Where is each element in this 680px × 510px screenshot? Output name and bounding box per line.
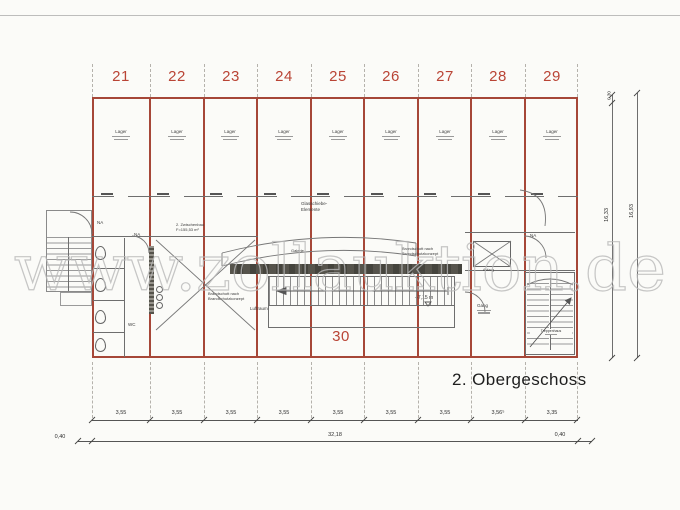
unit-divider [310,98,312,357]
unit-number: 22 [157,68,197,85]
door-opening [277,194,291,198]
unit-number: 28 [478,68,518,85]
grid-extension-line [257,362,258,418]
grid-extension-line [525,64,526,97]
wc-stall-wall [93,300,124,301]
dim-segment-label: 3,35 [532,410,572,416]
na-label: NA [97,220,103,226]
toilet-fixture [95,246,106,260]
right-zone-wall [465,232,575,233]
unit-number: 21 [101,68,141,85]
wc-partition-wall [124,238,125,357]
unit-label: Lager [369,130,413,140]
grid-extension-line [418,362,419,418]
door-opening [491,194,505,198]
dim-margin-label: 0,40 [46,434,74,440]
door-leaf [371,193,383,195]
unit-number: 25 [318,68,358,85]
unit-label: Lager [476,130,520,140]
door-leaf [531,193,543,195]
door-opening [384,194,398,198]
scanned-floor-plan-page: 21 22 23 24 25 26 27 28 29 Lager Lager L… [0,0,680,510]
galerie-label: Galerie [291,248,304,253]
exterior-landing [60,292,92,306]
dim-segment-label: 3,55 [211,410,251,416]
door-opening [170,194,184,198]
floor-caption: 2. Obergeschoss [452,370,587,390]
unit-divider [417,98,419,357]
sink-fixture [156,286,163,293]
door-opening [544,194,558,198]
grid-extension-line [311,64,312,97]
grid-extension-line [204,362,205,418]
dim-total-label: 32,18 [305,432,365,438]
door-leaf [101,193,113,195]
bottom-total-line [92,441,578,442]
central-stair [268,276,455,306]
grid-extension-line [471,64,472,97]
unit-label: Lager [155,130,199,140]
grid-extension-line [204,64,205,97]
unit-number: 23 [211,68,251,85]
brandschott-label: Brandschott nach Brandschutzkonzept [402,246,438,256]
zwischenbau-label: 2. Zwischenbau F=155,53 m² [176,222,204,232]
door-leaf [424,193,436,195]
hall-number: 30 [323,328,359,345]
dim-segment-label: 3,56⁵ [478,410,518,416]
right-zone-wall [465,270,575,271]
door-leaf [478,193,490,195]
glass-elements-label: Glasschiebe- Elemente [301,201,327,212]
right-dim-line-outer [637,93,638,358]
stairwell-center-line [550,278,551,350]
door-leaf [264,193,276,195]
grid-extension-line [364,362,365,418]
unit-label: Lager [208,130,252,140]
wc-stall-wall [93,332,124,333]
aufzug-label: Aufzug [483,268,494,273]
grid-extension-line [92,64,93,97]
door-leaf [210,193,222,195]
door-leaf [157,193,169,195]
unit-label: Lager [99,130,143,140]
dim-margin-label: 0,40 [546,432,574,438]
unit-label: Lager [423,130,467,140]
bottom-margin-line [78,441,92,442]
stairwell-treads [527,283,549,349]
door-opening [114,194,128,198]
grid-extension-line [150,64,151,97]
na-label: NA [134,232,140,238]
dim-label-16-33: 16,33 [604,200,610,230]
brandschott-label: Brandschott nach Brandschutzkonzept [208,291,244,301]
hall-edge [268,306,269,327]
dim-segment-label: 3,55 [318,410,358,416]
toilet-fixture [95,278,106,292]
dim-segment-label: 3,55 [157,410,197,416]
unit-number: 26 [371,68,411,85]
hall-edge [454,306,455,327]
dim-segment-label: 3,55 [371,410,411,416]
grid-extension-line [92,362,93,418]
bottom-margin-line [578,441,592,442]
dim-label-16-93: 16,93 [629,196,635,226]
na-label: NA [530,233,536,239]
dim-segment-label: 3,55 [425,410,465,416]
grid-extension-line [311,362,312,418]
door-leaf [317,193,329,195]
door-opening [223,194,237,198]
unit-divider [470,98,472,357]
dim-segment-label: 3,55 [101,410,141,416]
scan-artifact-line [0,15,680,16]
grid-extension-line [418,64,419,97]
sink-fixture [156,302,163,309]
toilet-fixture [95,310,106,324]
dim-label-0-30: 0,30 [607,81,612,111]
grid-extension-line [257,64,258,97]
sink-fixture [156,294,163,301]
grid-extension-line [364,64,365,97]
right-dim-line-inner [612,95,613,358]
grid-extension-line [577,64,578,97]
unit-number: 29 [532,68,572,85]
toilet-fixture [95,338,106,352]
exterior-stair-treads [47,237,91,291]
unit-label: Lager [316,130,360,140]
unit-number: 27 [425,68,465,85]
wc-label: WC [128,322,136,328]
hall-edge [268,327,455,328]
unit-label: Lager [530,130,574,140]
door-opening [330,194,344,198]
fire-barrier-band [230,264,462,274]
unit-label: Lager [262,130,306,140]
exterior-stair-center-line [68,237,69,291]
elevator-shaft [473,241,511,267]
unit-divider [149,98,151,357]
unit-number: 24 [264,68,304,85]
shaft-wall-hatched [149,246,154,314]
treppenhaus-label: Treppenhaus [530,329,572,335]
luftraum-label: Luftraum [250,306,268,312]
unit-divider [363,98,365,357]
door-opening [437,194,451,198]
unit-divider [256,98,258,357]
gang-label: Gang [477,303,491,314]
wc-stall-wall [93,268,124,269]
stairwell-treads [551,283,573,349]
grid-extension-line [150,362,151,418]
dim-segment-label: 3,55 [264,410,304,416]
bottom-dim-line [92,420,578,421]
corridor-wall [92,236,258,237]
